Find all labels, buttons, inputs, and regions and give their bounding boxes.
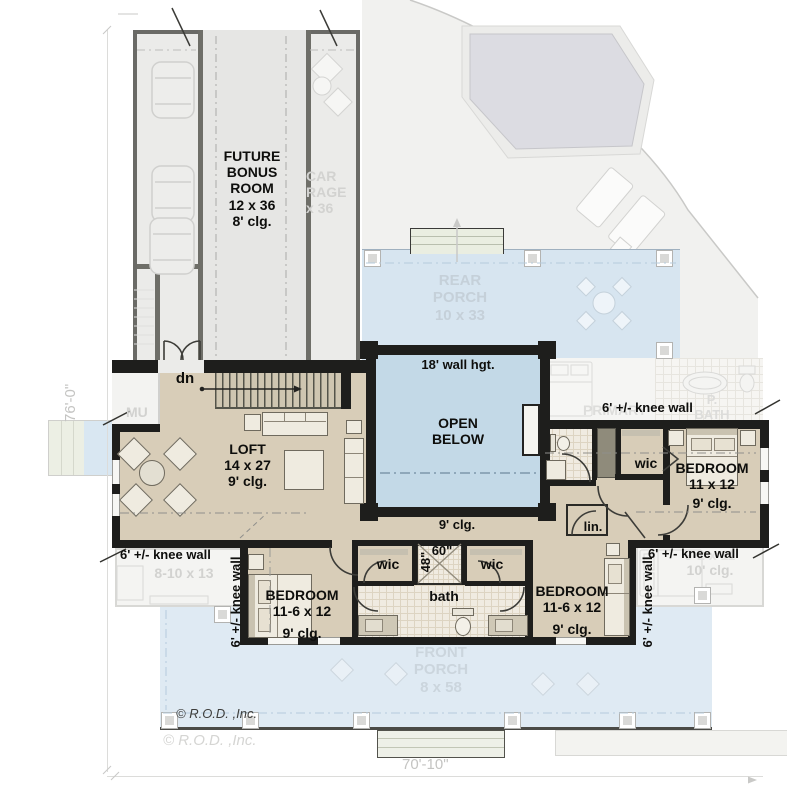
room-size: 12 x 36 bbox=[214, 197, 290, 213]
dimension-ticks bbox=[103, 14, 138, 780]
room-ceiling: 8' clg. bbox=[214, 213, 290, 229]
stairs-down-label: dn bbox=[172, 370, 198, 387]
room-name: BONUS bbox=[214, 164, 290, 180]
dimension-arrow-icon bbox=[748, 777, 757, 784]
knee-wall-label-w-vert: 6' +/- knee wall bbox=[228, 546, 243, 658]
copyright-dark: © R.O.D. ,Inc. bbox=[176, 706, 257, 721]
linen-label: lin. bbox=[578, 519, 608, 534]
ghost-pbath-label: P. BATH bbox=[694, 392, 730, 422]
copyright-light: © R.O.D. ,Inc. bbox=[163, 732, 257, 749]
dimension-bottom-label: 70'-10" bbox=[402, 756, 492, 773]
wic-label: wic bbox=[370, 556, 406, 572]
loft-label: LOFT 14 x 27 9' clg. bbox=[205, 441, 290, 490]
bonus-room-label: FUTURE BONUS ROOM 12 x 36 8' clg. bbox=[214, 148, 290, 229]
bedroom-se-label: BEDROOM 11-6 x 12 9' clg. bbox=[532, 583, 612, 638]
ghost-room-sw-size: 8-10 x 13 bbox=[146, 565, 222, 581]
dash-dot-lines bbox=[120, 36, 756, 713]
hall-ceiling-label: 9' clg. bbox=[436, 517, 478, 532]
rear-porch-label: REAR PORCH 10 x 33 bbox=[408, 272, 512, 324]
room-name: ROOM bbox=[214, 180, 290, 196]
knee-wall-label-e-vert: 6' +/- knee wall bbox=[640, 546, 655, 658]
bedroom-e-label: BEDROOM 11 x 12 9' clg. bbox=[670, 460, 754, 512]
bath-label: bath bbox=[420, 588, 468, 604]
dimension-left-label: 76'-0" bbox=[62, 342, 79, 422]
knee-wall-label-se: 6' +/- knee wall bbox=[648, 546, 774, 561]
front-porch-label: FRONT PORCH 8 x 58 bbox=[398, 644, 484, 696]
bedroom-sw-label: BEDROOM 11-6 x 12 9' clg. bbox=[262, 587, 342, 642]
stair-direction-arrow-icon bbox=[200, 386, 302, 393]
wic-label: wic bbox=[474, 556, 510, 572]
open-below-label: OPEN BELOW bbox=[408, 415, 508, 447]
ghost-mud-label: MU bbox=[126, 404, 156, 420]
ghost-room-se-ceiling: 10' clg. bbox=[672, 562, 748, 578]
ghost-garage-label: CAR RAGE x 36 bbox=[306, 168, 362, 217]
roof-tick bbox=[172, 8, 337, 46]
wall-height-label: 18' wall hgt. bbox=[396, 357, 520, 372]
shower-depth-label: 48" bbox=[418, 546, 433, 578]
wic-label: wic bbox=[628, 455, 664, 471]
room-name: FUTURE bbox=[214, 148, 290, 164]
floor-plan: FUTURE BONUS ROOM 12 x 36 8' clg. CAR RA… bbox=[0, 0, 787, 800]
